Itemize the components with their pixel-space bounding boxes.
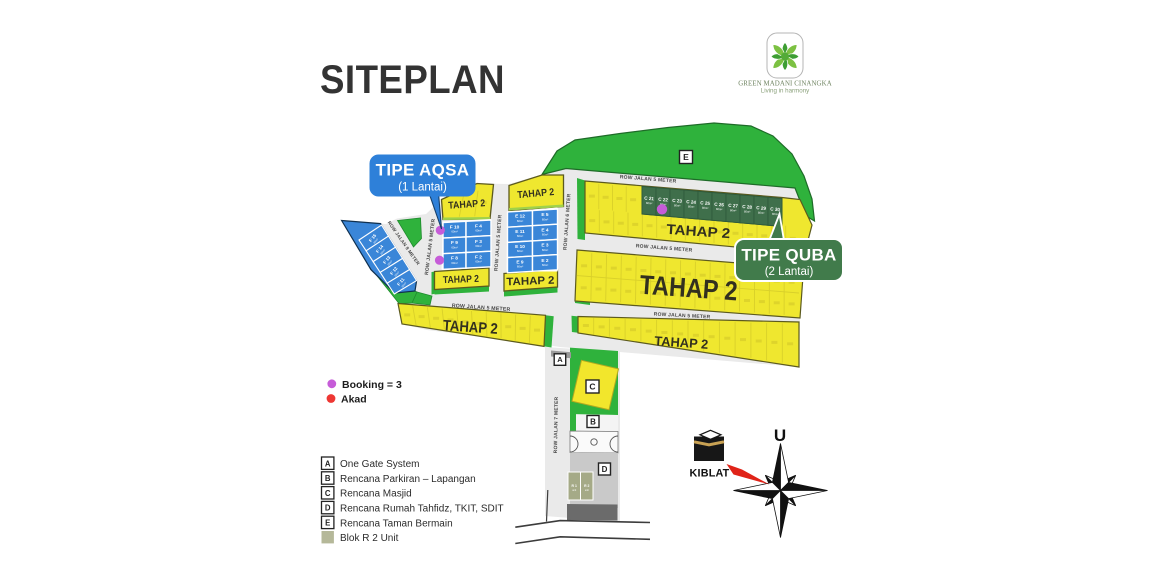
svg-text:D: D: [325, 504, 331, 513]
svg-text:unit: unit: [572, 489, 576, 492]
svg-text:A: A: [325, 459, 331, 468]
svg-text:60m²: 60m²: [451, 261, 457, 265]
svg-text:SITEPLAN: SITEPLAN: [320, 58, 505, 102]
svg-text:60m²: 60m²: [702, 206, 709, 211]
svg-text:GREEN MADANI CINANGKA: GREEN MADANI CINANGKA: [738, 81, 832, 88]
svg-text:C: C: [325, 489, 331, 498]
svg-text:60m²: 60m²: [758, 211, 765, 216]
svg-text:60m²: 60m²: [688, 204, 695, 209]
svg-text:B: B: [325, 474, 331, 483]
svg-text:(1 Lantai): (1 Lantai): [398, 182, 447, 194]
svg-text:60m²: 60m²: [542, 217, 548, 221]
svg-text:Akad: Akad: [341, 394, 367, 406]
svg-text:E: E: [683, 152, 689, 162]
svg-text:Living in harmony: Living in harmony: [761, 88, 810, 95]
svg-text:60m²: 60m²: [517, 249, 523, 253]
svg-text:60m²: 60m²: [475, 260, 481, 264]
svg-text:A: A: [557, 355, 563, 364]
svg-text:60m²: 60m²: [475, 244, 481, 248]
svg-text:60m²: 60m²: [451, 245, 457, 249]
svg-text:Rencana Masjid: Rencana Masjid: [340, 489, 412, 500]
svg-text:TAHAP 2: TAHAP 2: [443, 274, 480, 286]
svg-text:60m²: 60m²: [716, 207, 723, 212]
svg-text:One Gate System: One Gate System: [340, 459, 419, 470]
svg-text:TAHAP 2: TAHAP 2: [506, 275, 554, 289]
svg-text:(2 Lantai): (2 Lantai): [765, 266, 814, 278]
svg-text:60m²: 60m²: [451, 230, 457, 234]
svg-text:60m²: 60m²: [744, 209, 751, 214]
svg-text:TAHAP 2: TAHAP 2: [442, 317, 498, 338]
svg-text:60m²: 60m²: [542, 248, 548, 252]
svg-text:60m²: 60m²: [542, 263, 548, 267]
svg-text:U: U: [774, 426, 786, 445]
svg-text:TIPE AQSA: TIPE AQSA: [376, 161, 470, 180]
svg-text:Blok R 2 Unit: Blok R 2 Unit: [340, 533, 399, 544]
svg-text:Rencana Rumah Tahfidz, TKIT, S: Rencana Rumah Tahfidz, TKIT, SDIT: [340, 504, 504, 515]
svg-text:D: D: [602, 465, 608, 474]
svg-text:60m²: 60m²: [517, 234, 523, 238]
svg-text:Rencana Taman Bermain: Rencana Taman Bermain: [340, 518, 453, 529]
svg-text:R 1: R 1: [572, 484, 577, 488]
svg-text:unit: unit: [585, 489, 589, 492]
svg-text:B: B: [590, 417, 596, 426]
svg-text:Booking = 3: Booking = 3: [342, 379, 402, 391]
svg-text:60m²: 60m²: [475, 229, 481, 233]
svg-text:KIBLAT: KIBLAT: [690, 468, 730, 480]
svg-text:60m²: 60m²: [730, 208, 737, 213]
svg-text:E: E: [325, 519, 330, 528]
svg-text:TIPE QUBA: TIPE QUBA: [741, 246, 836, 265]
svg-text:Rencana Parkiran – Lapangan: Rencana Parkiran – Lapangan: [340, 474, 476, 485]
svg-text:60m²: 60m²: [517, 265, 523, 269]
svg-text:60m²: 60m²: [542, 233, 548, 237]
svg-text:ROW JALAN 7 METER: ROW JALAN 7 METER: [553, 396, 560, 453]
svg-text:60m²: 60m²: [772, 212, 779, 217]
svg-text:60m²: 60m²: [517, 219, 523, 223]
svg-text:R 2: R 2: [584, 484, 589, 488]
svg-text:60m²: 60m²: [646, 201, 653, 206]
svg-text:C: C: [589, 382, 595, 392]
svg-text:60m²: 60m²: [674, 203, 681, 208]
